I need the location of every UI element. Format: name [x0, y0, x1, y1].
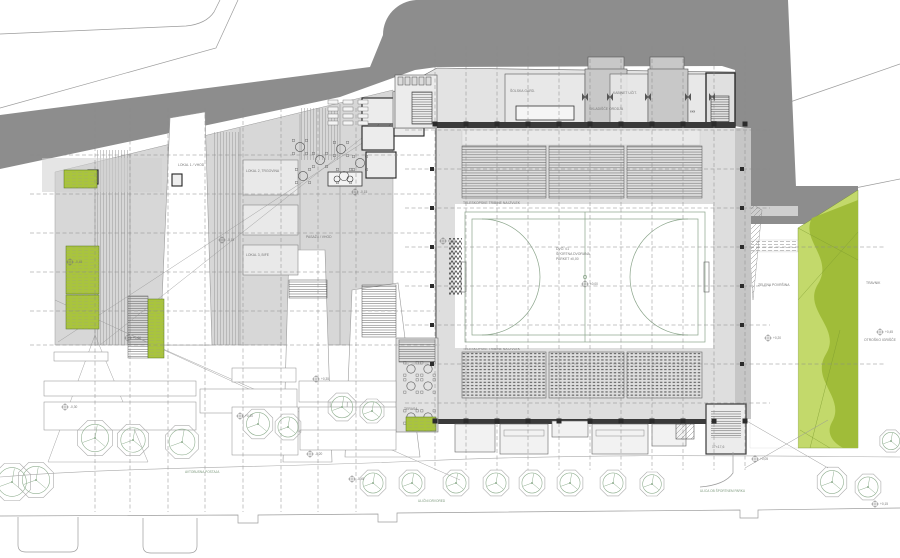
tree-branch: [364, 483, 373, 486]
tree-trunk: [890, 440, 892, 442]
wing-label-2: LOKAL 2, TRGOVINA: [246, 169, 280, 173]
tree-symbol: [519, 470, 545, 496]
room-label-3: SKLADIŠČE ORODJA: [589, 106, 624, 111]
column-marker: [433, 122, 438, 127]
tree-trunk: [372, 482, 374, 484]
room-label-2: KABINET UČIT.: [613, 90, 637, 95]
terrace-label: TERASA: [404, 407, 418, 411]
corridor-right: [735, 128, 751, 419]
column-marker: [650, 122, 655, 127]
tree-canopy-outline: [880, 430, 900, 452]
desk: [343, 107, 353, 111]
stair-top: [412, 92, 432, 124]
tree-trunk: [341, 406, 343, 408]
tree-branch: [652, 484, 659, 490]
tree-trunk: [411, 482, 413, 484]
hall-top-wall: [437, 122, 735, 128]
level-marker: +0,15: [871, 500, 888, 508]
court-label-1: DVO. 01: [556, 247, 569, 251]
top-rooms-band: ŠOLSKA GARD. KABINET UČIT. SKLADIŠČE ORO…: [393, 68, 735, 128]
column-marker: [740, 206, 744, 210]
column-marker: [526, 122, 531, 127]
tree-symbol: [817, 467, 847, 497]
entry-block: [500, 424, 548, 454]
tree-trunk: [612, 482, 614, 484]
tree-symbol: [399, 470, 425, 496]
tree-symbol: [360, 470, 386, 496]
tree-branch: [496, 474, 498, 483]
floor-plan-drawing: ZELENA POVRŠINA TRAVNIK OTROŠKO IGRIŠČE …: [0, 0, 900, 558]
bleachers-bottom: [462, 352, 702, 398]
road-edge-right-1: [790, 64, 900, 102]
wc-stalls: [398, 77, 431, 85]
column-marker: [464, 419, 469, 424]
room-light-2: [610, 74, 648, 126]
tree-trunk: [569, 482, 571, 484]
tree-branch: [36, 467, 38, 480]
stair-hatch-left: [128, 296, 148, 358]
column-marker: [681, 419, 686, 424]
tree-branch: [613, 474, 615, 483]
tree-trunk: [495, 482, 497, 484]
tree-symbol: [855, 474, 881, 500]
column-marker: [740, 167, 744, 171]
column-marker: [681, 122, 686, 127]
level-marker-value: +0,20: [773, 336, 781, 340]
sports-hall: TELESKOPSKE TRIBINE NA IZVLEK TELESKOPSK…: [435, 122, 751, 424]
tree-branch: [373, 483, 380, 489]
tree-branch: [604, 483, 613, 486]
tree-trunk: [257, 423, 259, 425]
column-marker: [430, 323, 434, 327]
level-marker-value: ±0,00: [590, 282, 598, 286]
tree-branch: [822, 482, 832, 486]
parking-bay-2: [143, 518, 197, 553]
tree-branch: [83, 438, 95, 442]
planter: [44, 402, 196, 430]
entry-blocks: [455, 421, 686, 454]
planter: [300, 430, 396, 450]
tree-trunk: [455, 482, 457, 484]
tree-trunk: [651, 483, 653, 485]
street-name-label: ULICA OB ŠPORTNEM PARKU: [700, 488, 746, 493]
lime-accent-hatch: [406, 417, 436, 431]
site-plan: ZELENA POVRŠINA TRAVNIK OTROŠKO IGRIŠČE …: [0, 0, 900, 558]
entry-block: [455, 424, 495, 452]
planter: [299, 381, 396, 402]
counter-room1: [516, 106, 574, 120]
tree-branch: [532, 483, 539, 489]
bleacher-block: [627, 352, 702, 398]
wing-rooms: [243, 160, 298, 275]
tree-symbol: [443, 470, 469, 496]
column-marker: [464, 122, 469, 127]
climbing-zigzag: [449, 238, 462, 295]
playground-label: OTROŠKO IGRIŠČE: [864, 337, 897, 342]
bleacher-block: [462, 146, 546, 198]
room-label-1: ŠOLSKA GARD.: [510, 88, 535, 93]
desk: [328, 114, 338, 118]
column-marker: [619, 419, 624, 424]
column-marker: [619, 122, 624, 127]
tree-symbol: [640, 472, 664, 496]
tree-branch: [832, 471, 834, 482]
tree-symbol: [165, 425, 198, 458]
desk: [343, 100, 353, 104]
column-marker: [557, 419, 562, 424]
level-marker-value: -0,15: [227, 238, 234, 242]
tower-cap-hatch-1: [289, 280, 327, 298]
bleacher-block: [462, 352, 546, 398]
tree-branch: [891, 441, 897, 446]
tree-branch: [487, 483, 496, 486]
planter: [232, 368, 296, 382]
court-label-2: ŠPORTNA DVORANA: [556, 251, 591, 256]
level-marker-value: +0,00: [133, 336, 141, 340]
tree-symbol: [880, 430, 900, 452]
tree-branch: [0, 482, 12, 487]
level-marker-value: +0,10: [245, 414, 253, 418]
room-mid-2: [648, 69, 688, 126]
tree-branch: [412, 474, 414, 483]
court-label-3: PARKET ±0,00: [556, 257, 579, 261]
column-marker: [743, 419, 748, 424]
lime-accent-hatch: [66, 246, 99, 294]
planter: [54, 352, 108, 361]
level-marker-value: -0,15: [360, 190, 367, 194]
gallery-strip: [462, 130, 700, 145]
level-marker-value: -0,30: [70, 405, 77, 409]
column-marker: [433, 419, 438, 424]
column-marker: [588, 122, 593, 127]
green-field: ZELENA POVRŠINA TRAVNIK OTROŠKO IGRIŠČE: [745, 186, 897, 448]
tree-trunk: [132, 439, 134, 441]
tree-branch: [456, 483, 463, 489]
desk: [328, 121, 338, 125]
tree-branch: [570, 474, 572, 483]
column-marker: [712, 419, 717, 424]
column-marker: [740, 245, 744, 249]
column-marker: [430, 362, 434, 366]
desk: [328, 107, 338, 111]
tree-branch: [447, 483, 456, 486]
column-marker: [588, 419, 593, 424]
column-marker: [740, 362, 744, 366]
room-asterisks: ⁎⁎⁎: [690, 109, 695, 113]
tree-branch: [496, 483, 503, 489]
tree-branch: [24, 480, 36, 484]
kitchen-counter: [328, 172, 362, 186]
road-edge-right-2: [855, 179, 900, 188]
column-marker: [740, 284, 744, 288]
tree-symbol: [483, 470, 509, 496]
tree-branch: [403, 483, 412, 486]
wing-label-3: LOKAL 3, BIFE: [246, 253, 270, 257]
wing-label-1: LOKAL 1 / VHOD: [178, 163, 205, 167]
tree-trunk: [287, 426, 289, 428]
gray-band-left: [42, 158, 162, 192]
road-edge-upper: [0, 0, 220, 34]
bleachers-top: [462, 146, 702, 198]
tree-branch: [95, 438, 105, 446]
tree-branch: [182, 442, 191, 450]
lawn-label: TRAVNIK: [866, 281, 881, 285]
level-marker-value: +0,35: [321, 377, 329, 381]
tree-branch: [570, 483, 577, 489]
tree-trunk: [831, 481, 833, 483]
street-curb: [0, 508, 900, 523]
level-marker-value: -0,20: [315, 452, 322, 456]
tree-symbol: [557, 470, 583, 496]
tree-branch: [532, 474, 534, 483]
terrace-stair: [399, 340, 435, 362]
tree-branch: [891, 433, 892, 441]
tree-trunk: [371, 410, 373, 412]
column-marker: [430, 245, 434, 249]
tree-branch: [561, 483, 570, 486]
tree-trunk: [531, 482, 533, 484]
level-marker-value: -0,45: [75, 260, 82, 264]
bleacher-block: [549, 146, 624, 198]
tree-branch: [652, 475, 654, 484]
entry-block: [592, 424, 648, 454]
lime-accent-hatch: [148, 299, 164, 358]
tree-branch: [868, 478, 870, 487]
desk: [343, 121, 353, 125]
tree-branch: [170, 442, 182, 446]
tree-trunk: [181, 441, 183, 443]
level-marker-value: +0,45: [885, 330, 893, 334]
level-marker-value: ±0,00: [448, 239, 456, 243]
column-marker: [740, 323, 744, 327]
column-marker: [557, 122, 562, 127]
column-marker: [430, 167, 434, 171]
tree-trunk: [11, 481, 13, 483]
stair-top-right: [711, 96, 729, 122]
walkway-white: [750, 252, 798, 448]
tree-symbol: [18, 462, 53, 497]
wing-label-4: PASAŽA / VHOD: [306, 234, 332, 239]
tree-branch: [36, 480, 46, 488]
column-marker: [430, 284, 434, 288]
level-marker-value: +0,05: [760, 457, 768, 461]
tree-branch: [868, 487, 875, 493]
drive-curve: [700, 452, 733, 487]
room-protrusion-2: [650, 57, 684, 70]
column-marker: [650, 419, 655, 424]
tree-branch: [133, 429, 135, 440]
tree-trunk: [35, 479, 37, 481]
elevator-box-2: [172, 174, 182, 186]
tree-branch: [859, 487, 868, 490]
tree-branch: [613, 483, 620, 489]
tree-branch: [122, 440, 133, 444]
tree-symbol: [600, 470, 626, 496]
column-marker: [712, 122, 717, 127]
tree-branch: [832, 482, 840, 489]
bleacher-block: [549, 352, 624, 398]
tree-branch: [523, 483, 532, 486]
bus-stop-label: AVTOBUSNA POSTAJA: [185, 470, 220, 474]
desk: [358, 121, 368, 125]
tree-branch: [12, 469, 14, 482]
column-marker: [495, 122, 500, 127]
lime-accent-hatch: [66, 295, 99, 329]
tree-branch: [373, 474, 375, 483]
exterior-stair-treads: [711, 410, 741, 438]
desk: [358, 100, 368, 104]
desk: [358, 107, 368, 111]
tree-branch: [883, 441, 891, 444]
lift-box: [676, 424, 694, 439]
desk: [328, 100, 338, 104]
column-marker: [526, 419, 531, 424]
desk: [343, 114, 353, 118]
column-marker: [743, 122, 748, 127]
parking-bay-1: [18, 517, 78, 552]
level-marker-value: +0,15: [880, 502, 888, 506]
tree-branch: [644, 484, 652, 487]
tree-trunk: [94, 437, 96, 439]
level-marker: +0,45: [876, 328, 893, 336]
level-marker-value: -0,45: [357, 477, 364, 481]
column-marker: [430, 206, 434, 210]
bleacher-block: [627, 146, 702, 198]
desk: [358, 114, 368, 118]
tree-row-label: ULIČNI DRVORED: [418, 498, 446, 503]
streets: AVTOBUSNA POSTAJA ULIČNI DRVORED ULICA O…: [0, 452, 900, 553]
planter: [44, 381, 196, 396]
tree-branch: [182, 430, 184, 442]
tree-branch: [412, 483, 419, 489]
tree-trunk: [867, 486, 869, 488]
lime-accent-hatch: [64, 170, 97, 188]
column-marker: [495, 419, 500, 424]
